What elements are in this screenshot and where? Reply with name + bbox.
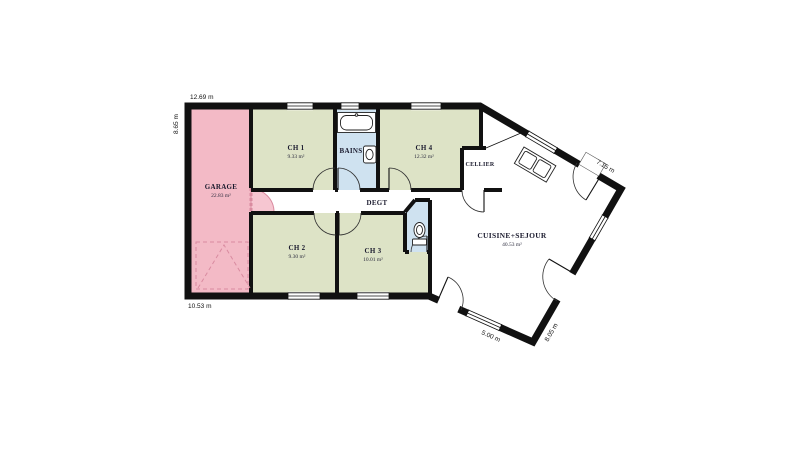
dimension-label-left: 8.65 m xyxy=(173,114,180,134)
window-ch1 xyxy=(287,102,313,109)
room-area-ch2: 9.30 m² xyxy=(289,254,306,260)
toilet-icon xyxy=(413,223,427,246)
dimension-label-top: 12.69 m xyxy=(190,94,214,101)
room-ch2-fill xyxy=(251,213,336,293)
room-garage-fill xyxy=(192,110,252,293)
window-ch2 xyxy=(288,292,320,299)
room-label-degt: DEGT xyxy=(366,199,387,207)
dimension-label-bottom-center: 5.00 m xyxy=(480,329,501,343)
window-ch4 xyxy=(411,102,441,109)
window-bains xyxy=(341,102,359,109)
room-label-bains: BAINS xyxy=(340,147,363,155)
room-area-garage: 22.83 m² xyxy=(211,193,231,199)
washbasin-icon xyxy=(364,146,377,163)
room-area-ch4: 12.32 m² xyxy=(414,154,434,160)
room-label-ch3: CH 3 xyxy=(365,247,382,255)
room-area-sejour: 40.53 m² xyxy=(502,242,522,248)
room-label-ch1: CH 1 xyxy=(288,144,305,152)
room-label-garage: GARAGE xyxy=(205,183,238,191)
room-label-ch4: CH 4 xyxy=(416,144,433,152)
room-label-ch2: CH 2 xyxy=(289,244,306,252)
room-area-ch1: 9.33 m² xyxy=(288,154,305,160)
dimension-label-bottom-left: 10.53 m xyxy=(188,303,212,310)
bathtub-icon xyxy=(338,113,376,133)
room-area-ch3: 10.01 m² xyxy=(363,257,383,263)
floor-plan-canvas: GARAGE 22.83 m² CH 1 9.33 m² BAINS CH 4 … xyxy=(0,0,800,456)
window-ch3 xyxy=(357,292,389,299)
room-label-sejour: CUISINE+SEJOUR xyxy=(477,231,547,240)
room-label-cellier: CELLIER xyxy=(465,162,494,168)
